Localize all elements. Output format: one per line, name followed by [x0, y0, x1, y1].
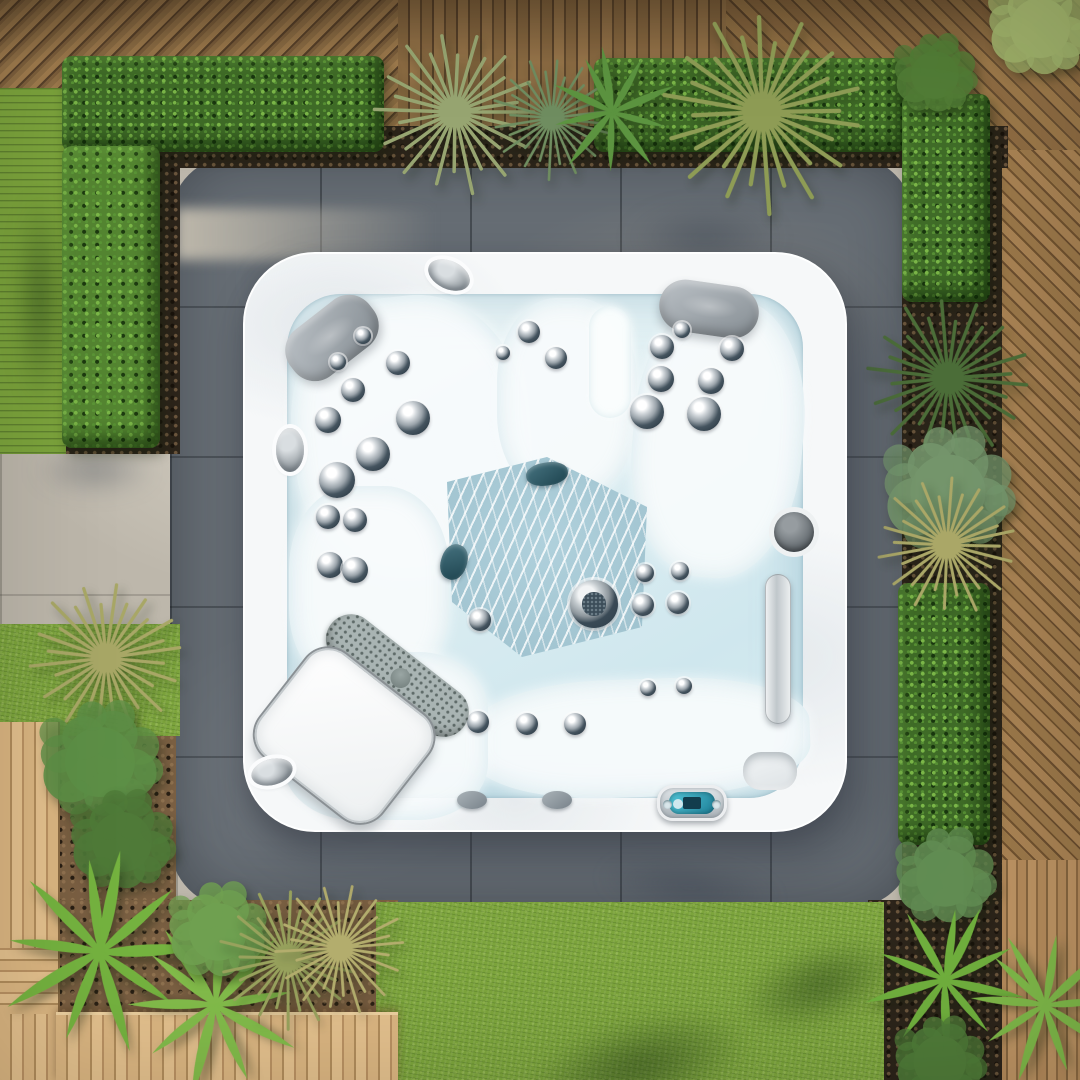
jet	[720, 337, 744, 361]
jet	[630, 395, 664, 429]
control-panel-screen[interactable]	[669, 792, 715, 814]
seat-divider-ridge	[589, 306, 631, 418]
jet	[516, 713, 538, 735]
jet	[342, 557, 368, 583]
jet	[330, 354, 346, 370]
rim-hand-scoop	[423, 253, 475, 297]
jet	[674, 322, 690, 338]
overhanging-foliage	[980, 0, 1080, 88]
ornamental-grass-plant	[264, 872, 416, 1024]
jet	[564, 713, 586, 735]
jet	[319, 462, 355, 498]
control-panel-button[interactable]	[712, 800, 721, 809]
ornamental-grass-plant	[858, 456, 1036, 634]
shrub-plant	[888, 28, 983, 123]
jet	[341, 378, 365, 402]
diverter-cap	[542, 791, 572, 809]
shrub-plant	[888, 1010, 993, 1080]
jet	[317, 552, 343, 578]
rim-hand-scoop	[276, 428, 304, 472]
jet	[698, 368, 724, 394]
footwell-jet	[469, 609, 491, 631]
jet	[671, 562, 689, 580]
jet	[632, 594, 654, 616]
garden-hot-tub-aerial-scene	[0, 0, 1080, 1080]
ornamental-grass-plant	[641, 0, 884, 233]
jet	[687, 397, 721, 431]
cup-holder-recess	[743, 752, 797, 790]
jet	[648, 366, 674, 392]
jet	[316, 505, 340, 529]
jet	[667, 592, 689, 614]
hedge-left-column	[62, 146, 160, 448]
jet	[636, 564, 654, 582]
diverter-cap	[457, 791, 487, 809]
jet	[545, 347, 567, 369]
jet	[650, 335, 674, 359]
jet	[343, 508, 367, 532]
jet	[355, 328, 371, 344]
jet	[496, 346, 510, 360]
jet	[356, 437, 390, 471]
hedge-right-upper	[902, 94, 990, 302]
jet	[518, 321, 540, 343]
hedge-top-left	[62, 56, 384, 152]
control-panel[interactable]	[657, 785, 727, 821]
jet	[386, 351, 410, 375]
speaker-recess	[774, 512, 814, 552]
jet	[676, 678, 692, 694]
control-panel-button[interactable]	[663, 800, 672, 809]
floor-drain	[570, 580, 618, 628]
jet	[640, 680, 656, 696]
grab-rail	[765, 574, 791, 724]
jet	[396, 401, 430, 435]
hot-tub	[243, 252, 847, 832]
jet	[315, 407, 341, 433]
